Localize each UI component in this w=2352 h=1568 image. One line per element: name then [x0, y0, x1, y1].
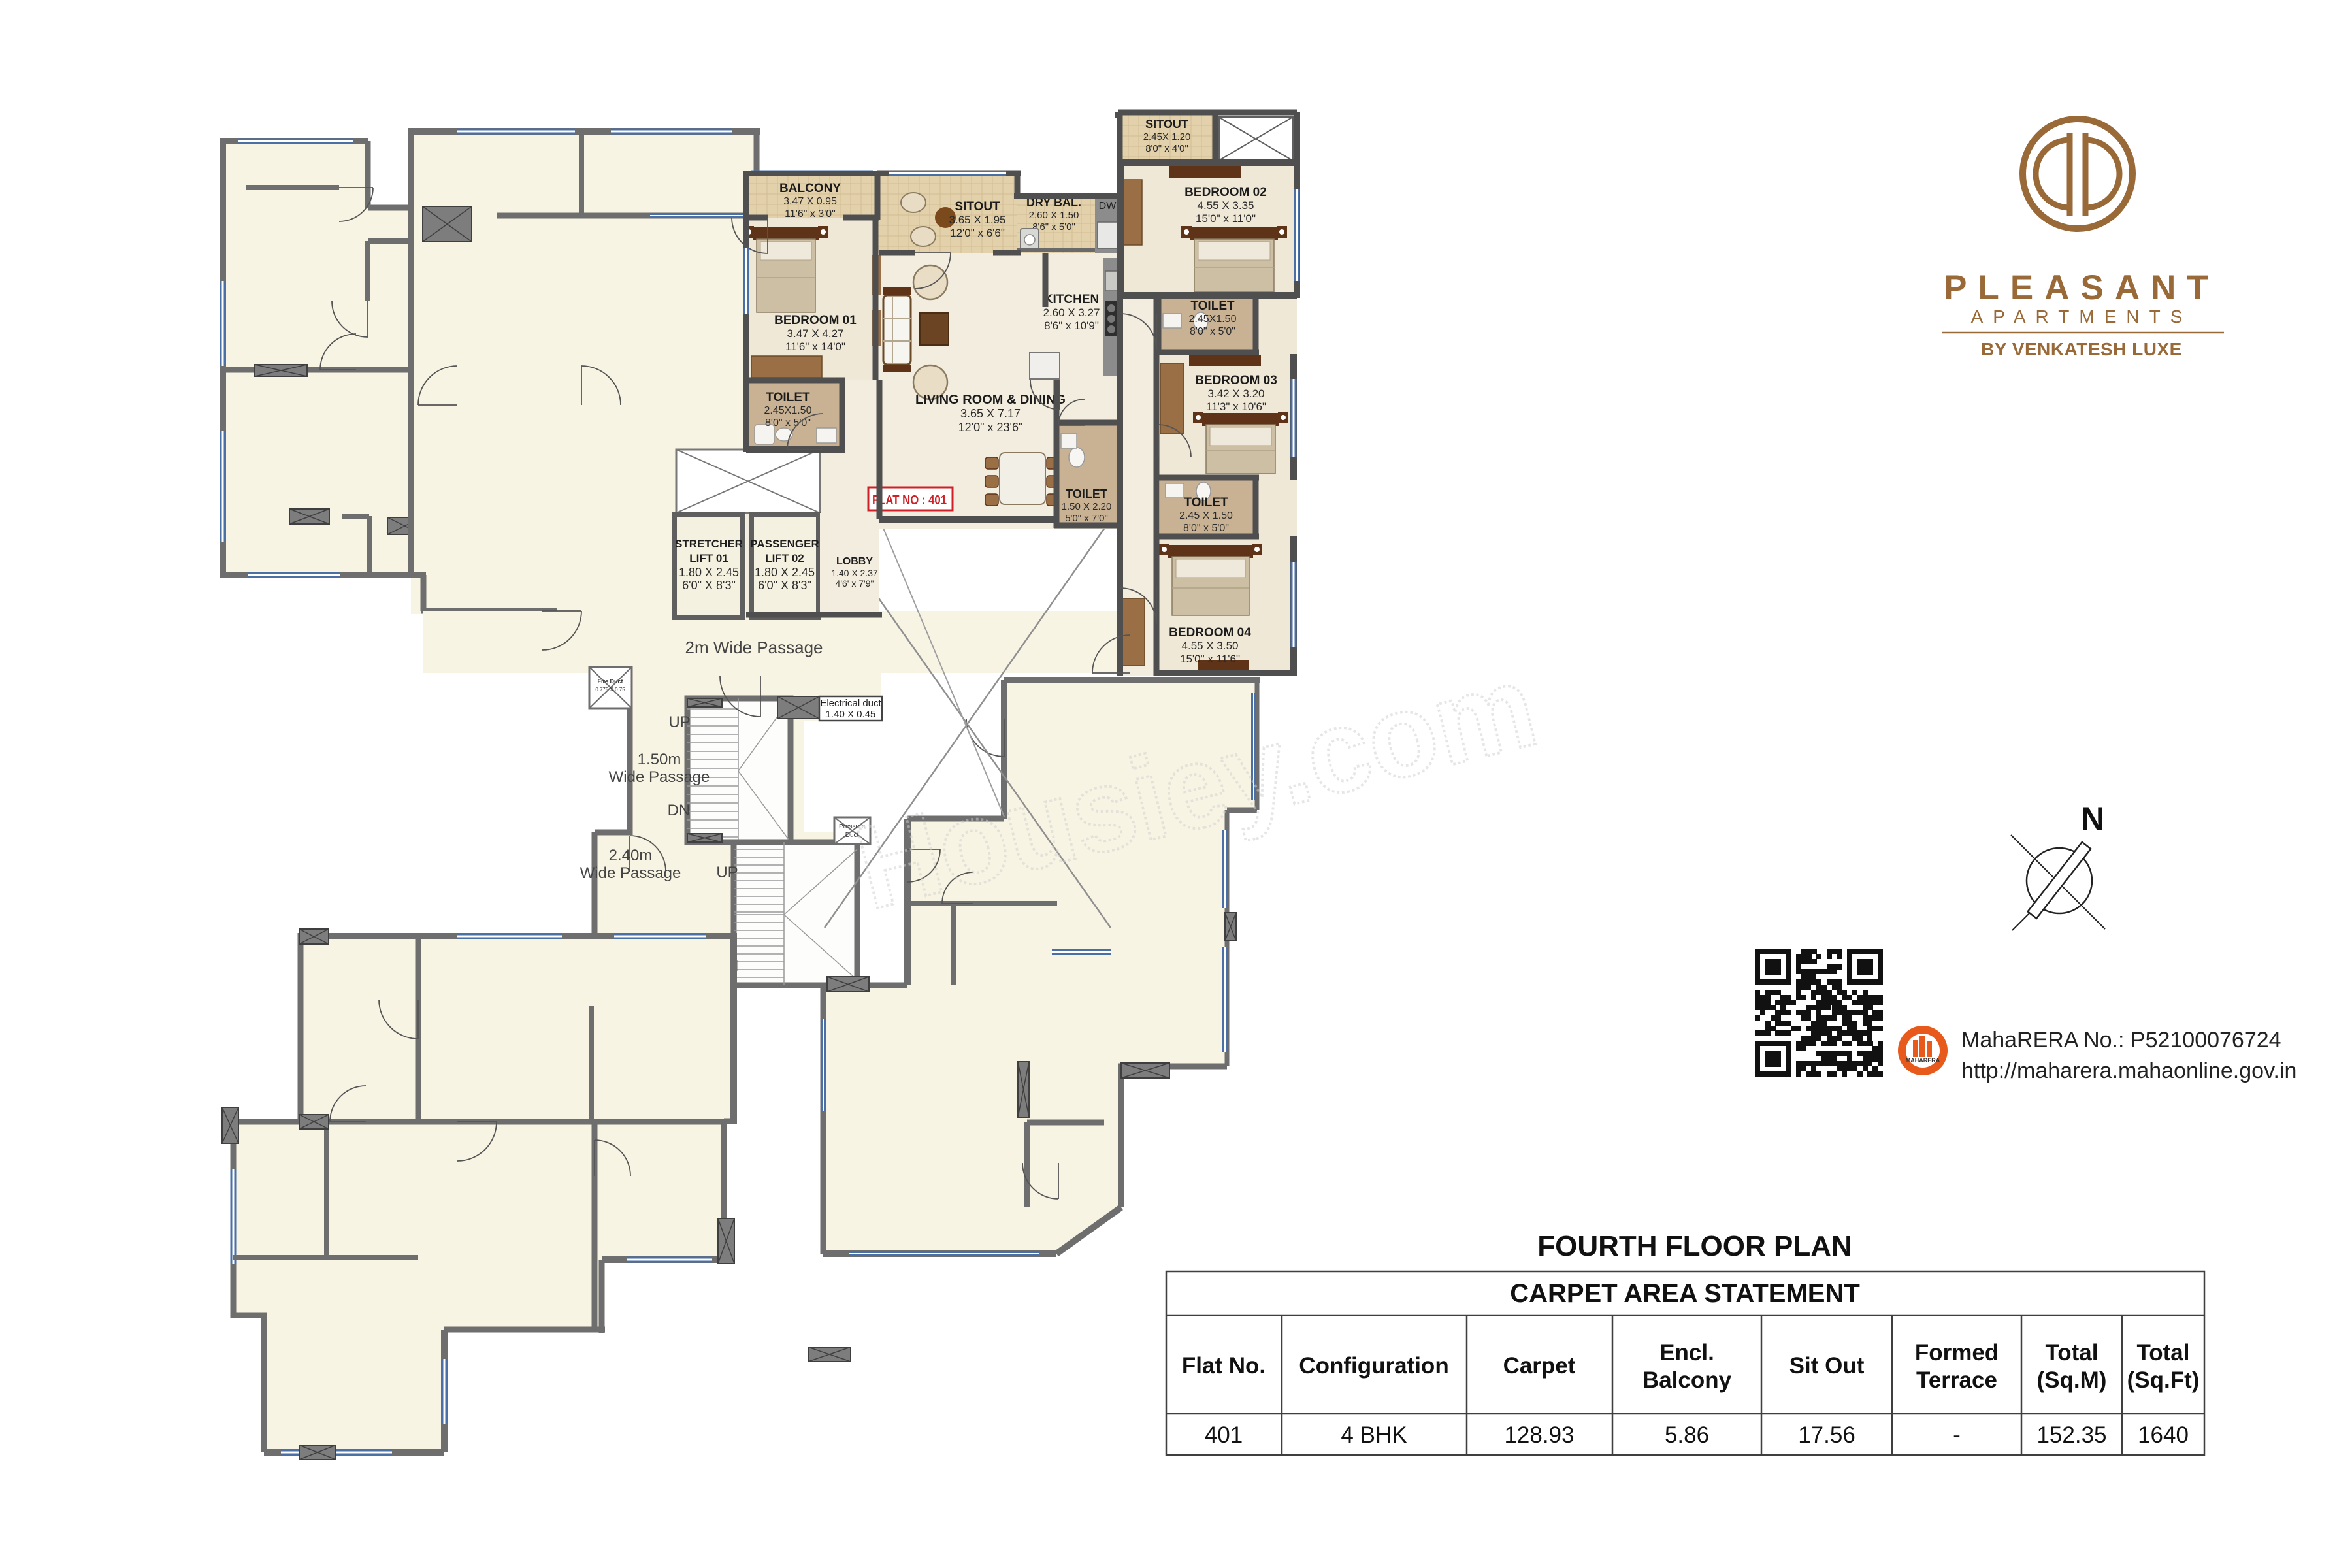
- svg-text:12'0" x 6'6": 12'0" x 6'6": [950, 227, 1005, 239]
- svg-text:128.93: 128.93: [1504, 1422, 1574, 1448]
- svg-text:11'6" x 14'0": 11'6" x 14'0": [785, 340, 845, 353]
- svg-text:PLEASANT: PLEASANT: [1944, 269, 2219, 307]
- svg-text:152.35: 152.35: [2036, 1422, 2106, 1448]
- svg-text:DW: DW: [1099, 201, 1117, 212]
- svg-text:2.45X1.50: 2.45X1.50: [1189, 314, 1237, 325]
- svg-text:LIFT 02: LIFT 02: [765, 552, 804, 564]
- svg-text:Wide Passage: Wide Passage: [609, 768, 710, 786]
- svg-text:2.45X 1.20: 2.45X 1.20: [1143, 131, 1191, 142]
- svg-text:1.80 X 2.45: 1.80 X 2.45: [679, 566, 739, 579]
- svg-text:Wide Passage: Wide Passage: [580, 864, 681, 882]
- svg-text:0.775 X 0.75: 0.775 X 0.75: [595, 687, 625, 693]
- svg-text:2.60 X 3.27: 2.60 X 3.27: [1043, 306, 1100, 319]
- svg-text:BEDROOM 01: BEDROOM 01: [774, 314, 857, 327]
- svg-text:15'0" x 11'6": 15'0" x 11'6": [1180, 653, 1240, 665]
- svg-text:FOURTH FLOOR PLAN: FOURTH FLOOR PLAN: [1537, 1230, 1852, 1262]
- svg-text:4 BHK: 4 BHK: [1341, 1422, 1407, 1448]
- svg-text:3.47 X 4.27: 3.47 X 4.27: [787, 327, 844, 340]
- svg-text:Terrace: Terrace: [1916, 1367, 1997, 1393]
- svg-text:BEDROOM 03: BEDROOM 03: [1195, 374, 1277, 387]
- svg-text:TOILET: TOILET: [1184, 496, 1228, 510]
- svg-text:APARTMENTS: APARTMENTS: [1971, 306, 2193, 327]
- svg-text:4.55 X 3.50: 4.55 X 3.50: [1182, 640, 1239, 652]
- svg-text:401: 401: [1205, 1422, 1243, 1448]
- svg-text:MAHARERA: MAHARERA: [1906, 1057, 1940, 1064]
- svg-text:8'0" x 4'0": 8'0" x 4'0": [1145, 143, 1188, 154]
- svg-text:8'0" x 5'0": 8'0" x 5'0": [1190, 326, 1235, 337]
- svg-text:TOILET: TOILET: [1066, 487, 1107, 500]
- svg-text:2.45 X 1.50: 2.45 X 1.50: [1179, 510, 1233, 521]
- svg-text:Total: Total: [2045, 1340, 2098, 1365]
- svg-text:LIFT 01: LIFT 01: [689, 552, 728, 564]
- svg-text:Electrical duct: Electrical duct: [820, 698, 881, 709]
- svg-text:1.80 X 2.45: 1.80 X 2.45: [755, 566, 815, 579]
- svg-text:STRETCHER: STRETCHER: [675, 538, 743, 550]
- svg-text:TOILET: TOILET: [766, 391, 810, 404]
- svg-text:8'0" x 5'0": 8'0" x 5'0": [1183, 523, 1229, 534]
- svg-text:KITCHEN: KITCHEN: [1044, 293, 1099, 306]
- svg-text:Configuration: Configuration: [1299, 1353, 1448, 1379]
- svg-text:6'0" X 8'3": 6'0" X 8'3": [758, 579, 811, 592]
- svg-text:5'0" x 7'0": 5'0" x 7'0": [1065, 513, 1108, 524]
- svg-text:N: N: [2081, 800, 2104, 837]
- svg-text:Balcony: Balcony: [1642, 1367, 1732, 1393]
- svg-text:6'0" X 8'3": 6'0" X 8'3": [682, 579, 736, 592]
- svg-text:PASSENGER: PASSENGER: [750, 538, 819, 550]
- svg-text:4.55 X 3.35: 4.55 X 3.35: [1198, 199, 1254, 212]
- svg-text:LOBBY: LOBBY: [836, 556, 873, 567]
- svg-text:UP: UP: [668, 713, 690, 731]
- svg-text:SITOUT: SITOUT: [955, 200, 1000, 214]
- svg-text:BEDROOM 02: BEDROOM 02: [1184, 186, 1267, 199]
- svg-text:FLAT NO : 401: FLAT NO : 401: [872, 493, 947, 508]
- svg-text:UP: UP: [716, 864, 738, 881]
- svg-text:1.50 X 2.20: 1.50 X 2.20: [1062, 501, 1112, 512]
- svg-text:Total: Total: [2136, 1340, 2189, 1365]
- svg-text:CARPET AREA STATEMENT: CARPET AREA STATEMENT: [1510, 1279, 1860, 1308]
- svg-text:TOILET: TOILET: [1190, 299, 1235, 313]
- svg-text:http://maharera.mahaonline.gov: http://maharera.mahaonline.gov.in: [1961, 1058, 2296, 1083]
- svg-text:1640: 1640: [2138, 1422, 2189, 1448]
- svg-text:17.56: 17.56: [1798, 1422, 1855, 1448]
- svg-text:11'3" x 10'6": 11'3" x 10'6": [1206, 400, 1266, 413]
- svg-text:2.60 X 1.50: 2.60 X 1.50: [1029, 210, 1079, 221]
- svg-text:-: -: [1953, 1422, 1961, 1448]
- svg-text:2.40m: 2.40m: [609, 847, 653, 864]
- svg-text:8'6" x 10'9": 8'6" x 10'9": [1044, 319, 1099, 332]
- svg-text:3.47 X 0.95: 3.47 X 0.95: [783, 196, 837, 207]
- svg-text:Carpet: Carpet: [1503, 1353, 1576, 1379]
- svg-text:2.45X1.50: 2.45X1.50: [764, 405, 812, 416]
- svg-text:DN: DN: [668, 802, 691, 819]
- svg-text:12'0" x 23'6": 12'0" x 23'6": [958, 421, 1023, 434]
- svg-text:BALCONY: BALCONY: [779, 182, 841, 195]
- svg-text:5.86: 5.86: [1665, 1422, 1709, 1448]
- svg-text:15'0" x 11'0": 15'0" x 11'0": [1196, 212, 1256, 225]
- svg-text:Formed: Formed: [1915, 1340, 1999, 1365]
- svg-text:Sit Out: Sit Out: [1789, 1353, 1865, 1379]
- svg-text:3.65 X 1.95: 3.65 X 1.95: [949, 214, 1006, 226]
- svg-text:1.40 X 0.45: 1.40 X 0.45: [826, 709, 876, 720]
- svg-text:4'6' x 7'9": 4'6' x 7'9": [836, 578, 874, 589]
- svg-text:(Sq.M): (Sq.M): [2037, 1367, 2107, 1393]
- svg-text:Encl.: Encl.: [1659, 1340, 1714, 1365]
- svg-text:3.42 X 3.20: 3.42 X 3.20: [1208, 387, 1265, 400]
- svg-text:SITOUT: SITOUT: [1145, 118, 1188, 131]
- svg-text:MahaRERA No.: P52100076724: MahaRERA No.: P52100076724: [1961, 1028, 2281, 1053]
- svg-text:(Sq.Ft): (Sq.Ft): [2127, 1367, 2200, 1393]
- svg-text:1.40 X 2.37: 1.40 X 2.37: [831, 568, 878, 578]
- svg-text:2m Wide Passage: 2m Wide Passage: [685, 638, 823, 657]
- svg-text:Flat No.: Flat No.: [1182, 1353, 1266, 1379]
- svg-text:3.65 X 7.17: 3.65 X 7.17: [960, 407, 1021, 420]
- svg-text:BY VENKATESH LUXE: BY VENKATESH LUXE: [1981, 339, 2182, 359]
- svg-text:1.50m: 1.50m: [638, 751, 681, 768]
- svg-text:Fire Duct: Fire Duct: [597, 678, 623, 685]
- svg-text:BEDROOM 04: BEDROOM 04: [1169, 626, 1251, 640]
